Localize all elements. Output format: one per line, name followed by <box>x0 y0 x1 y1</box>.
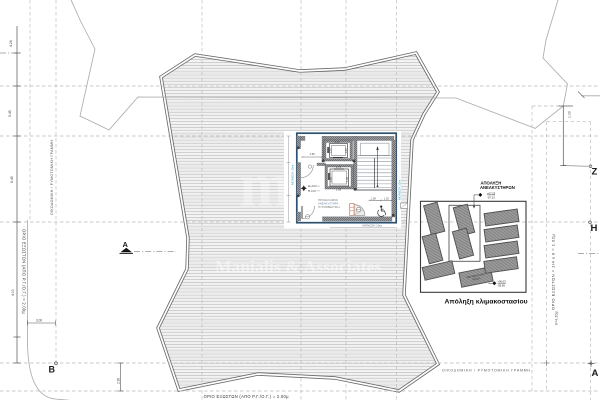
svg-text:4.00: 4.00 <box>11 289 15 296</box>
svg-text:5.45: 5.45 <box>8 110 12 117</box>
svg-text:4.24: 4.24 <box>9 40 13 47</box>
svg-text:1.98: 1.98 <box>371 198 376 201</box>
svg-text:δ=4.20μ: δ=4.20μ <box>555 311 559 325</box>
svg-text:Manialis & Associates: Manialis & Associates <box>215 257 382 276</box>
svg-text:2.30: 2.30 <box>117 378 121 384</box>
svg-text:-0.15: -0.15 <box>310 190 316 193</box>
svg-text:ΜΟΝΩΣΗ 10εκ: ΜΟΝΩΣΗ 10εκ <box>291 164 295 185</box>
svg-text:3.00: 3.00 <box>36 319 42 323</box>
svg-text:ΑΝΕΛΚΥΣΤΗΡΩΝ: ΑΝΕΛΚΥΣΤΗΡΩΝ <box>480 185 515 190</box>
svg-text:2.30: 2.30 <box>329 176 333 182</box>
svg-text:B: B <box>49 365 56 375</box>
svg-text:H: H <box>591 223 598 234</box>
svg-text:2.00: 2.00 <box>335 140 341 144</box>
svg-text:ΜΟΝΩΣΗ 10εκ: ΜΟΝΩΣΗ 10εκ <box>363 224 383 228</box>
svg-text:-07.13: -07.13 <box>487 195 495 199</box>
svg-text:ΟΡΙΟ ΕΞΩΣΤΩΝ = 1/4 x δ = 1.02μ: ΟΡΙΟ ΕΞΩΣΤΩΝ = 1/4 x δ = 1.02μ <box>551 233 556 310</box>
svg-text:ΟΡΙΟ ΕΞΩΣΤΩΝ (ΑΠΟ Ρ.Γ./Ο.Γ.) =: ΟΡΙΟ ΕΞΩΣΤΩΝ (ΑΠΟ Ρ.Γ./Ο.Γ.) = 2.00μ <box>204 394 289 399</box>
svg-text:8.45: 8.45 <box>10 176 14 183</box>
svg-text:1.40: 1.40 <box>345 176 349 182</box>
svg-text:m: m <box>239 152 291 220</box>
svg-text:ΜΟΝΩΣΗ 10εκ: ΜΟΝΩΣΗ 10εκ <box>397 179 401 200</box>
svg-text:1.03: 1.03 <box>568 111 572 118</box>
svg-text:1.75: 1.75 <box>336 165 342 169</box>
svg-text:A: A <box>592 368 599 379</box>
svg-text:Απόληξη κλιμακοστασίου: Απόληξη κλιμακοστασίου <box>444 298 527 306</box>
svg-text:1.50: 1.50 <box>310 152 316 156</box>
svg-text:A: A <box>123 240 129 249</box>
svg-text:-06.65: -06.65 <box>497 284 505 288</box>
svg-text:ΠΥΡΟΣΒΕΣΤΙΚΗ: ΠΥΡΟΣΒΕΣΤΙΚΗ <box>318 205 340 209</box>
svg-text:Z: Z <box>592 167 598 178</box>
svg-text:ΟΙΚΟΔΟΜΙΚΗ / ΡΥΜΟΤΟΜΙΚΗ ΓΡΑΜΜΗ: ΟΙΚΟΔΟΜΙΚΗ / ΡΥΜΟΤΟΜΙΚΗ ΓΡΑΜΜΗ <box>442 369 531 373</box>
svg-text:ΟΡΙΟ ΕΞΩΣΤΩΝ (ΑΠΟ Ρ.Γ./Ο.Γ.) =: ΟΡΙΟ ΕΞΩΣΤΩΝ (ΑΠΟ Ρ.Γ./Ο.Γ.) = 2.00μ <box>22 229 27 314</box>
svg-text:1.30: 1.30 <box>329 148 333 154</box>
svg-text:1.98: 1.98 <box>336 188 342 192</box>
svg-text:ΟΙΚΟΔΟΜΙΚΗ / ΡΥΜΟΤΟΜΙΚΗ ΓΡΑΜΜΗ: ΟΙΚΟΔΟΜΙΚΗ / ΡΥΜΟΤΟΜΙΚΗ ΓΡΑΜΜΗ <box>50 140 54 215</box>
svg-text:1.25: 1.25 <box>384 198 389 201</box>
svg-text:1.40: 1.40 <box>344 148 348 154</box>
svg-text:+0.00: +0.00 <box>310 185 317 188</box>
